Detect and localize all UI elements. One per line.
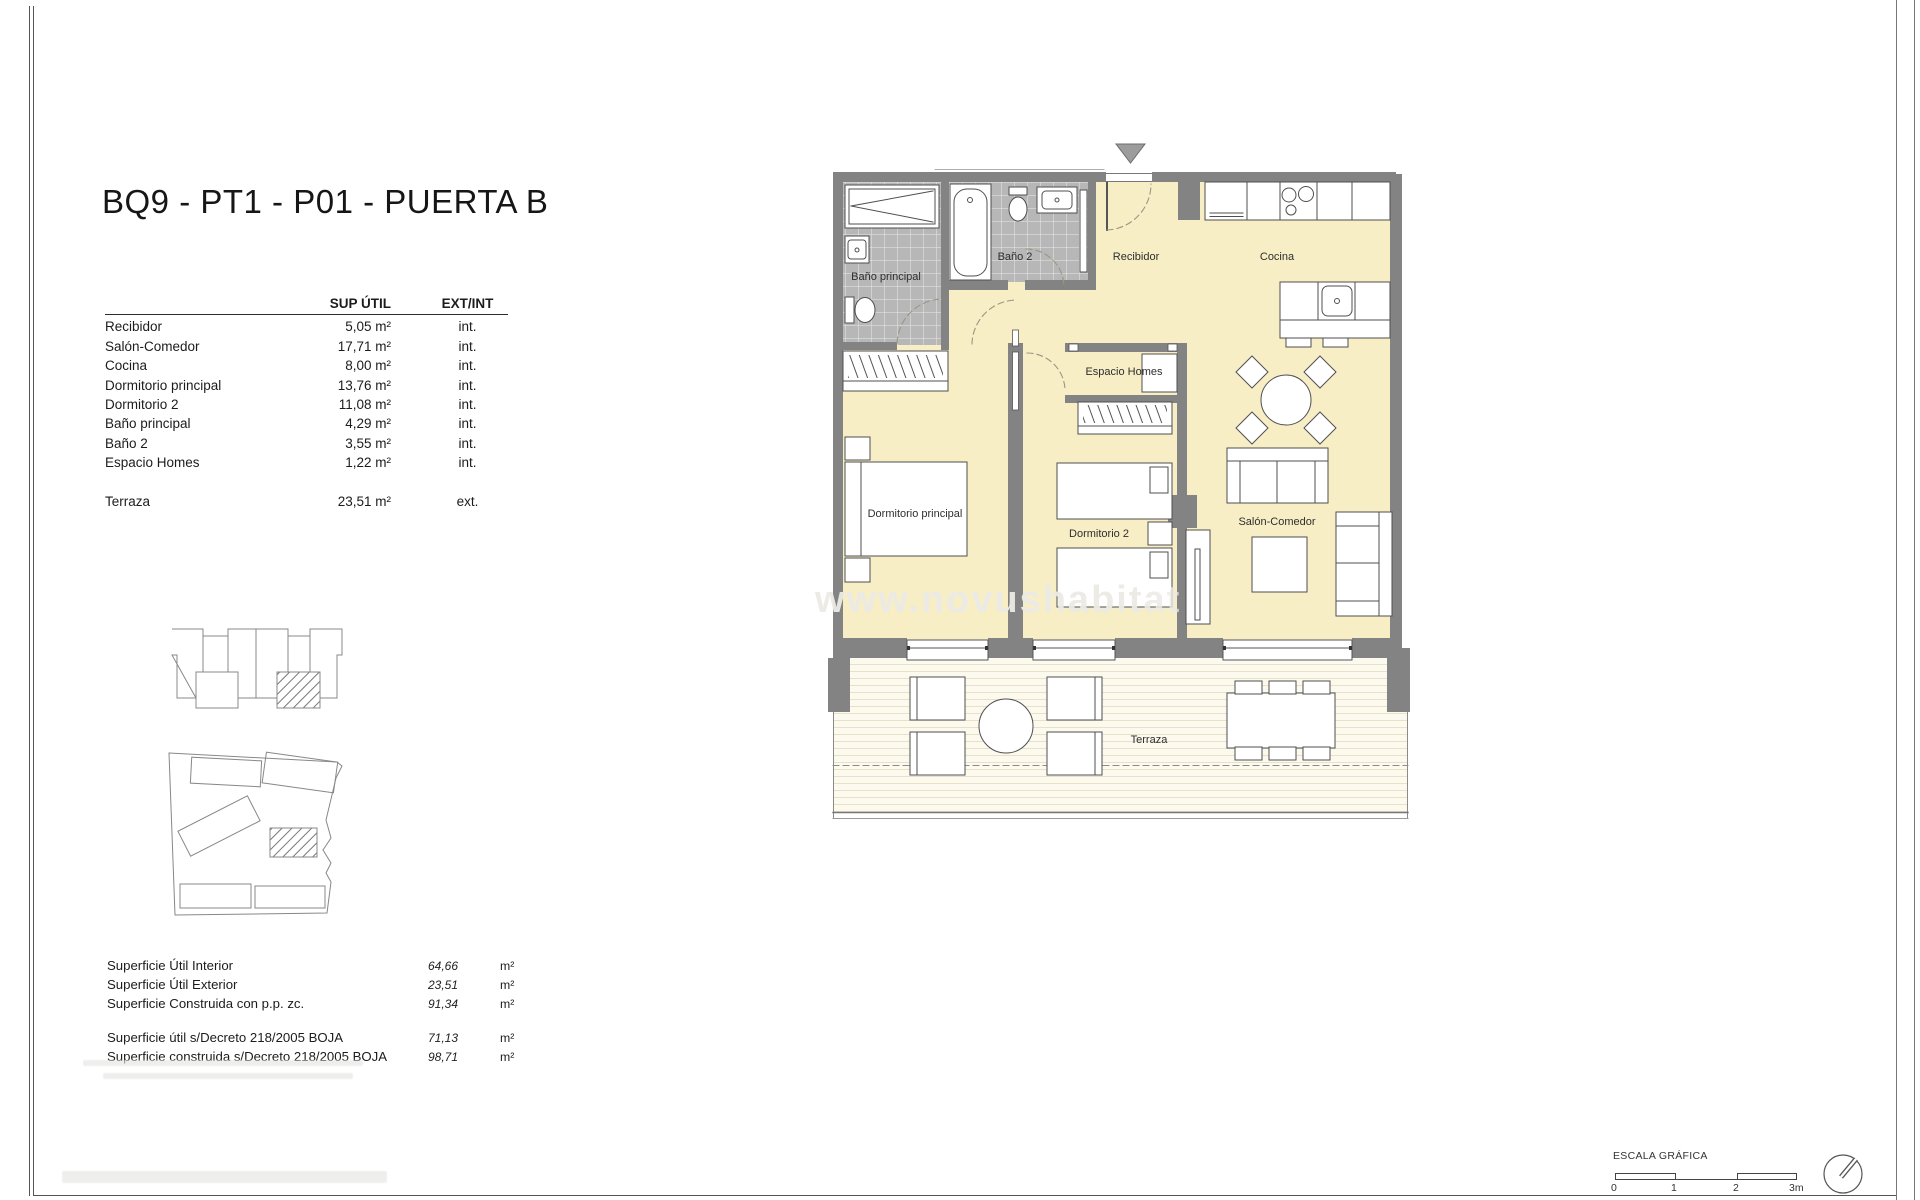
room-label-dormitorio-principal: Dormitorio principal [868, 508, 963, 520]
room-label-salon: Salón-Comedor [1238, 516, 1315, 528]
pillow [1150, 467, 1168, 493]
toilet [845, 297, 854, 323]
stool [1286, 338, 1311, 347]
room-label-bano2: Baño 2 [998, 251, 1033, 263]
site-plan-diagram [169, 752, 342, 915]
sofa [1227, 448, 1328, 503]
highlighted-building [270, 828, 317, 857]
room-label-dormitorio2: Dormitorio 2 [1069, 528, 1129, 540]
room-label-bano-principal: Baño principal [851, 271, 921, 283]
terrace-chair [1047, 732, 1102, 775]
entrance-arrow-marker [1116, 144, 1145, 163]
sofa [1336, 512, 1392, 616]
island-bar [1280, 320, 1390, 338]
scale-bar [1615, 1173, 1797, 1180]
sliding-door-leaf [1013, 330, 1019, 346]
north-compass-icon [1824, 1155, 1862, 1193]
shower-tray [845, 185, 939, 228]
nightstand [845, 437, 870, 460]
floor-plan: Baño principal Baño 2 Recibidor Cocina E… [814, 144, 1410, 819]
bathroom-cabinet [1080, 190, 1087, 272]
toilet [1009, 187, 1027, 195]
drawing-canvas: Baño principal Baño 2 Recibidor Cocina E… [0, 0, 1920, 1200]
tv-unit [1186, 530, 1210, 624]
window [1033, 640, 1115, 660]
room-label-recibidor: Recibidor [1113, 251, 1160, 263]
terrace-chair [910, 677, 965, 720]
pocket-door-slot [1013, 352, 1019, 410]
pillow [1150, 552, 1168, 578]
terrace-chair [910, 732, 965, 775]
window [907, 640, 988, 660]
terrace-round-table [979, 699, 1033, 753]
room-label-cocina: Cocina [1260, 251, 1295, 263]
room-label-espacio-homes: Espacio Homes [1085, 366, 1163, 378]
kitchen-counter [1205, 182, 1390, 220]
coffee-table [1252, 537, 1307, 592]
nightstand [1148, 522, 1172, 545]
window [1223, 640, 1352, 660]
room-label-terraza: Terraza [1131, 734, 1169, 746]
highlighted-unit [277, 672, 320, 708]
building-footprint-diagram [172, 629, 342, 708]
stool [1323, 338, 1348, 347]
bathtub [950, 184, 991, 280]
terrace-chair [1047, 677, 1102, 720]
wardrobe [843, 351, 948, 391]
watermark: www.novushabitat [814, 579, 1181, 621]
terrace-dining-table [1227, 693, 1335, 748]
wardrobe [1078, 402, 1172, 434]
dining-table [1261, 375, 1311, 425]
